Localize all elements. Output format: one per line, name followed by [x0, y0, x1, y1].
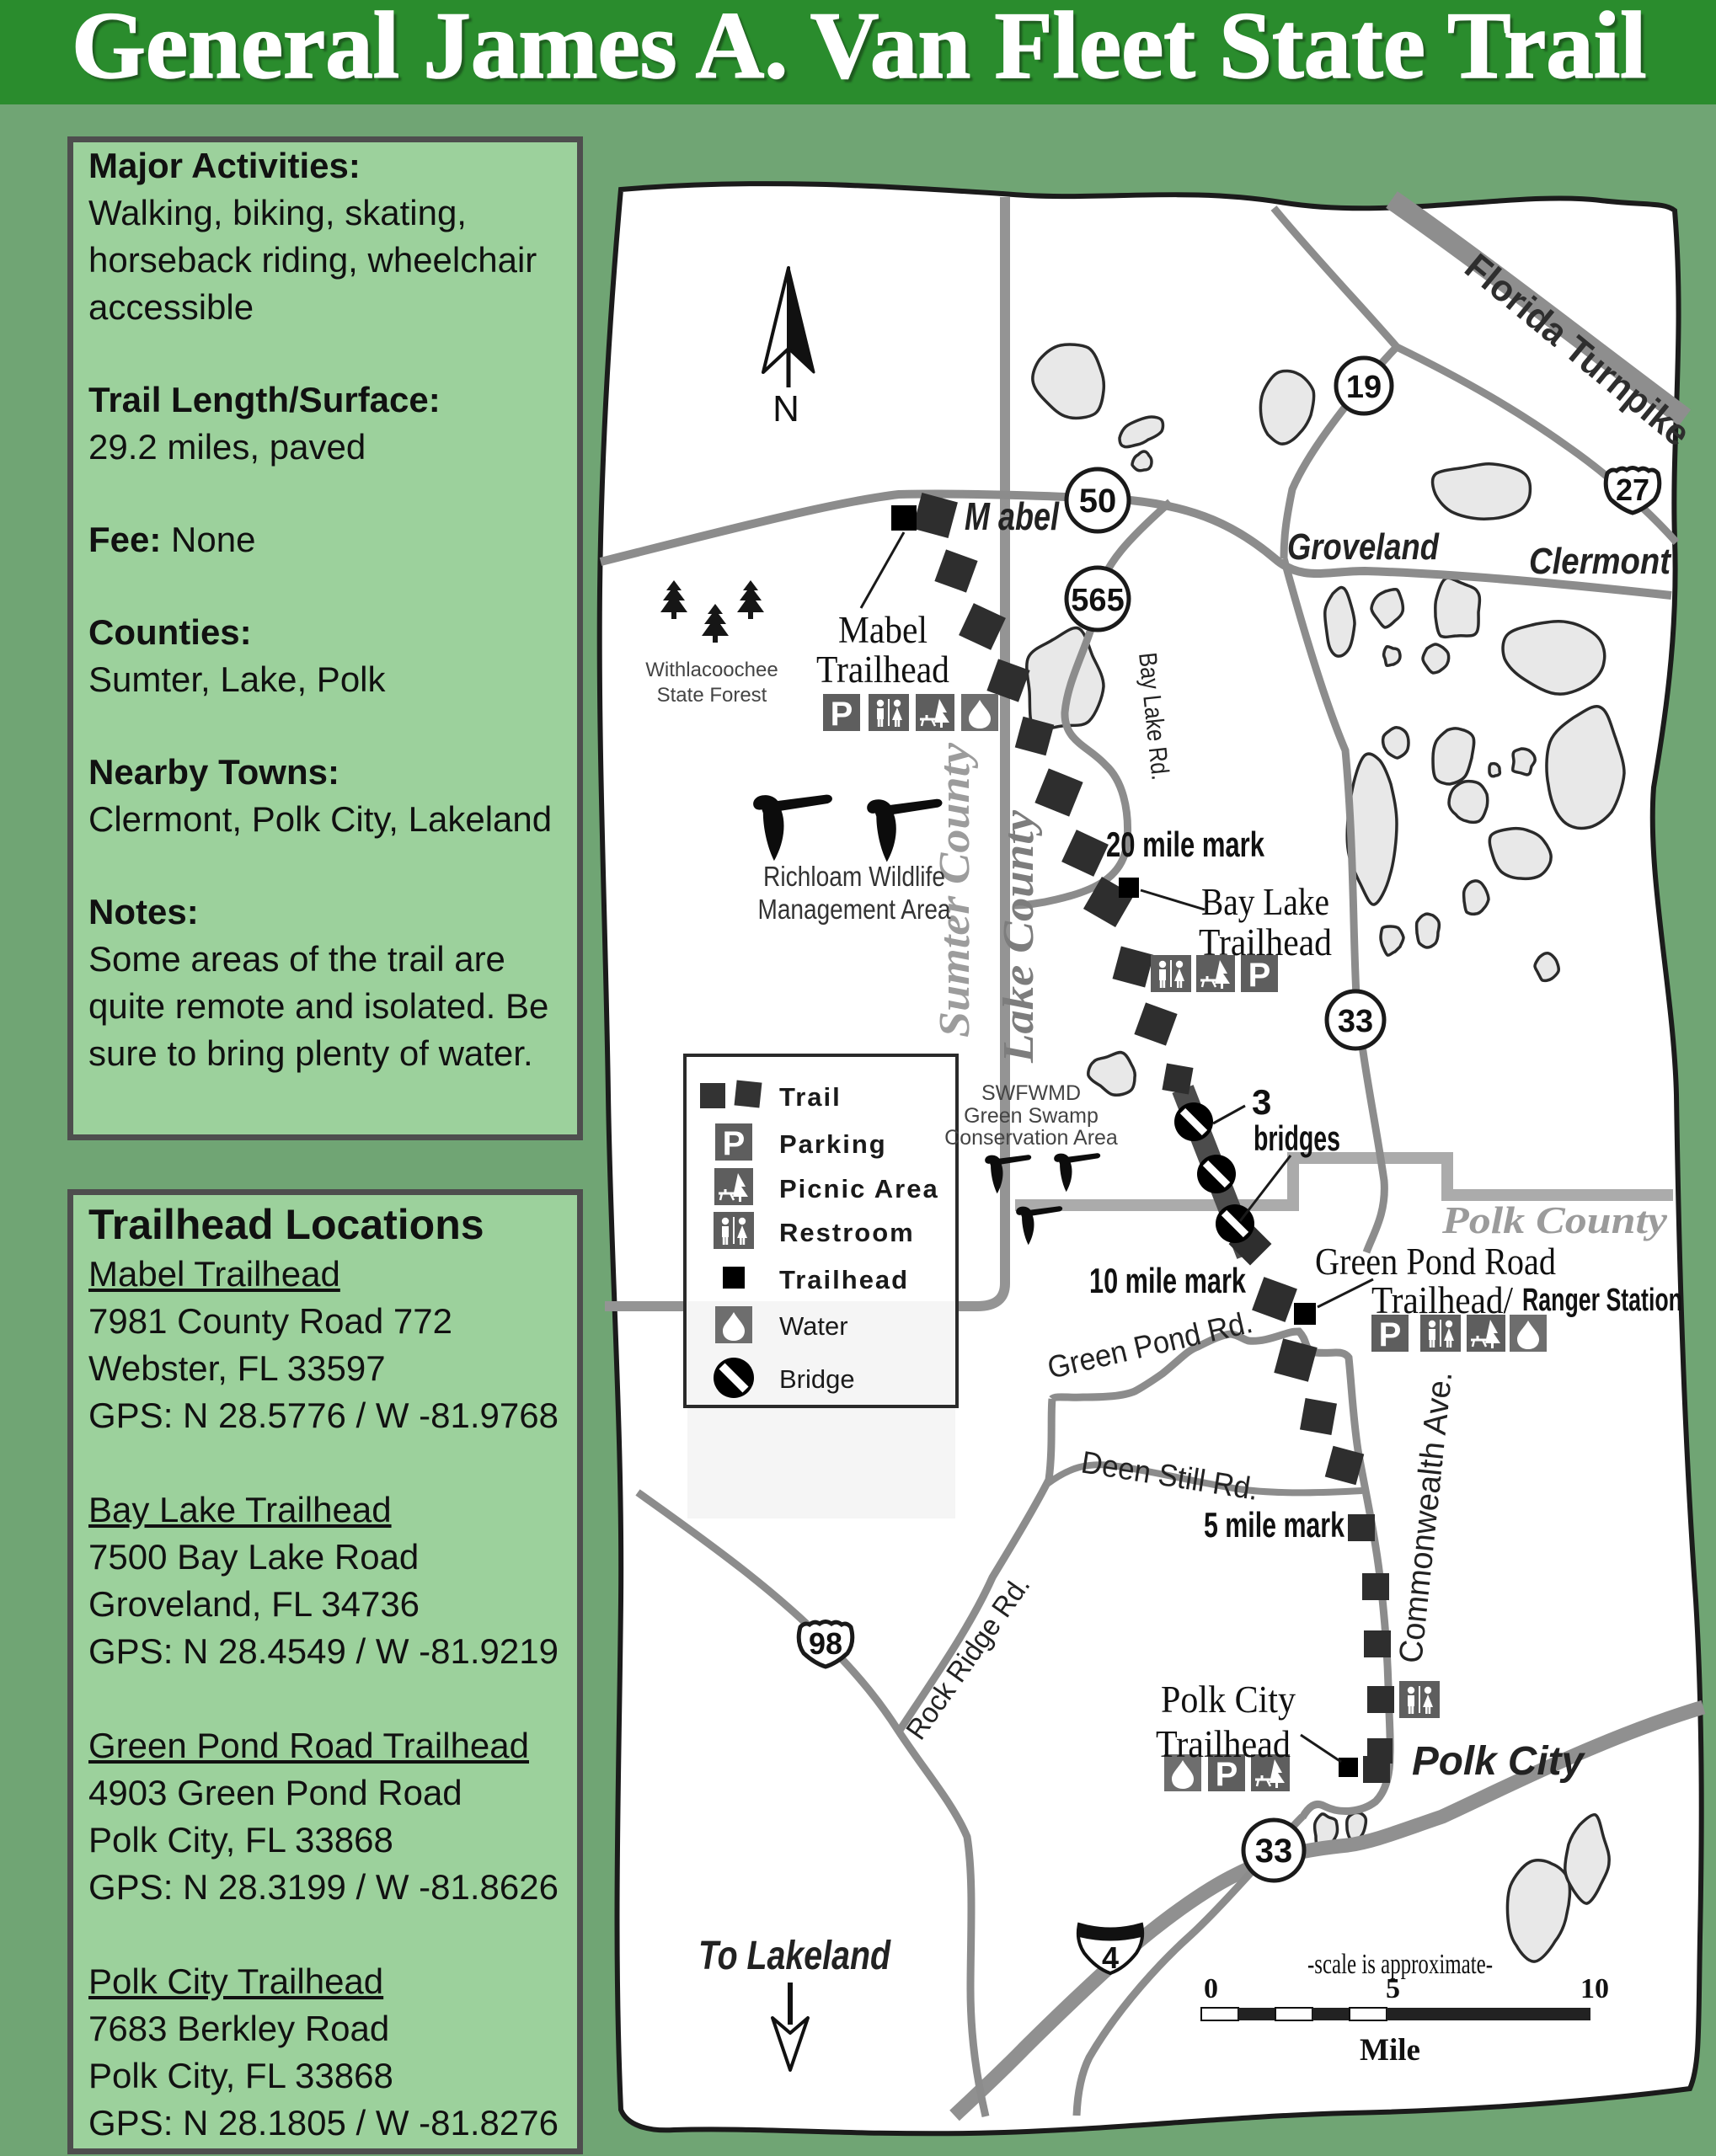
svg-text:Clermont: Clermont — [1529, 541, 1672, 582]
svg-text:19: 19 — [1346, 370, 1382, 405]
svg-text:Green Swamp: Green Swamp — [964, 1104, 1099, 1128]
svg-text:Management Area: Management Area — [758, 894, 952, 925]
svg-text:Mabel: Mabel — [838, 609, 927, 651]
svg-text:SWFWMD: SWFWMD — [981, 1081, 1081, 1105]
svg-text:Conservation Area: Conservation Area — [944, 1126, 1118, 1150]
svg-text:Trailhead: Trailhead — [816, 648, 949, 691]
svg-text:33: 33 — [1338, 1004, 1373, 1039]
svg-text:33: 33 — [1255, 1833, 1293, 1870]
svg-text:Bay Lake: Bay Lake — [1201, 881, 1329, 923]
svg-text:27: 27 — [1616, 472, 1649, 507]
svg-text:Polk County: Polk County — [1441, 1198, 1668, 1241]
svg-text:4: 4 — [1102, 1940, 1119, 1975]
svg-text:To Lakeland: To Lakeland — [698, 1934, 891, 1978]
svg-text:Picnic Area: Picnic Area — [779, 1174, 939, 1203]
svg-text:bridges: bridges — [1254, 1118, 1340, 1158]
svg-text:Restroom: Restroom — [779, 1218, 915, 1247]
svg-text:Groveland: Groveland — [1287, 526, 1440, 568]
svg-text:Mile: Mile — [1360, 2033, 1420, 2068]
svg-text:Lake County: Lake County — [995, 809, 1043, 1064]
svg-text:5 mile mark: 5 mile mark — [1204, 1505, 1344, 1545]
svg-text:Ranger Station: Ranger Station — [1522, 1283, 1682, 1318]
svg-text:Trail: Trail — [779, 1082, 842, 1112]
svg-text:Water: Water — [779, 1311, 848, 1341]
svg-text:0: 0 — [1204, 1973, 1218, 2004]
svg-text:Parking: Parking — [779, 1129, 887, 1159]
svg-text:Trailhead: Trailhead — [779, 1265, 909, 1294]
svg-text:20 mile mark: 20 mile mark — [1106, 825, 1264, 864]
svg-text:3: 3 — [1252, 1082, 1271, 1122]
svg-text:Withlacoochee: Withlacoochee — [645, 659, 778, 681]
svg-text:565: 565 — [1071, 583, 1124, 618]
svg-text:5: 5 — [1386, 1973, 1400, 2004]
svg-text:10 mile mark: 10 mile mark — [1089, 1261, 1246, 1300]
svg-text:N: N — [772, 388, 799, 430]
svg-text:50: 50 — [1079, 483, 1117, 520]
svg-text:Trailhead: Trailhead — [1156, 1723, 1291, 1765]
svg-text:Bridge: Bridge — [779, 1364, 855, 1394]
svg-text:Polk City: Polk City — [1161, 1678, 1296, 1721]
svg-text:Richloam Wildlife: Richloam Wildlife — [763, 861, 945, 892]
svg-text:Green Pond Road: Green Pond Road — [1315, 1240, 1556, 1283]
svg-text:Polk City: Polk City — [1412, 1739, 1585, 1784]
svg-text:Trailhead/: Trailhead/ — [1371, 1278, 1513, 1321]
svg-text:10: 10 — [1580, 1973, 1609, 2004]
svg-text:Trailhead: Trailhead — [1199, 921, 1332, 963]
svg-text:State Forest: State Forest — [657, 684, 767, 707]
svg-text:-scale is approximate-: -scale is approximate- — [1307, 1949, 1493, 1980]
svg-text:98: 98 — [809, 1626, 842, 1661]
svg-text:M abel: M abel — [965, 494, 1060, 538]
